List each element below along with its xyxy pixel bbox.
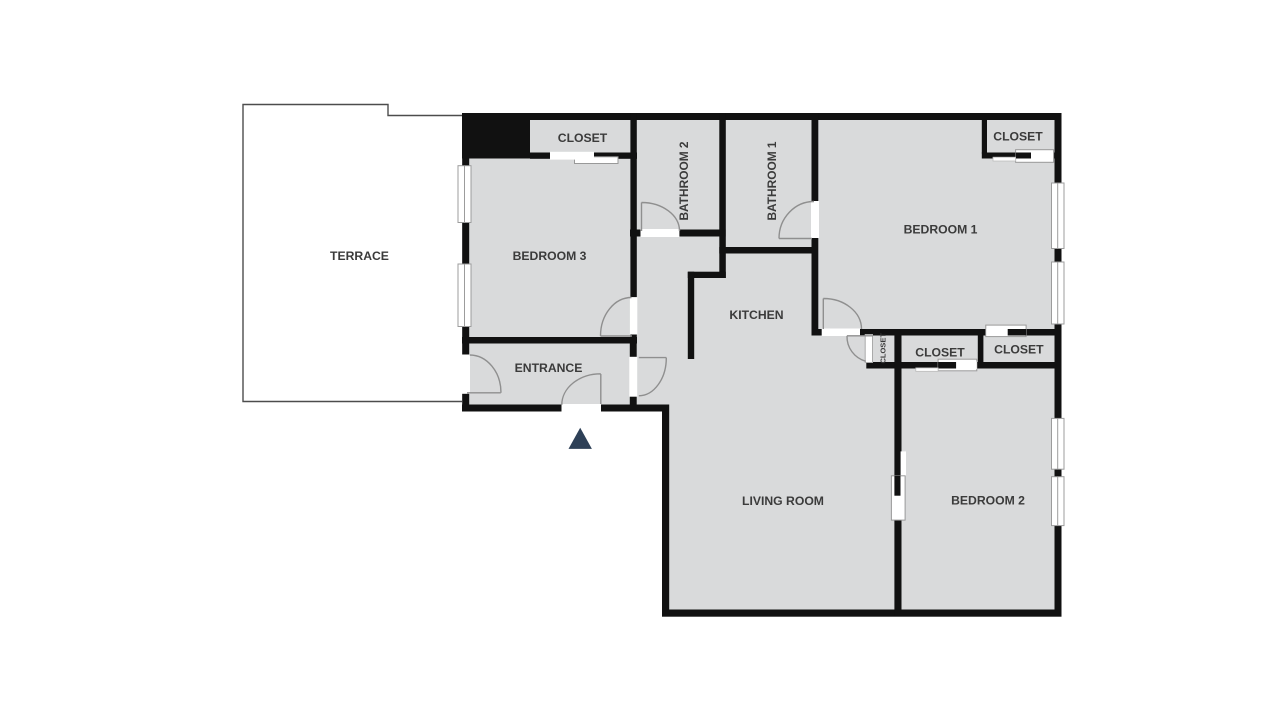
svg-text:CLOSET: CLOSET: [915, 345, 965, 359]
svg-text:BEDROOM 2: BEDROOM 2: [951, 494, 1025, 508]
svg-text:CLOSET: CLOSET: [879, 333, 888, 364]
svg-text:BEDROOM 3: BEDROOM 3: [513, 249, 587, 263]
svg-text:CLOSET: CLOSET: [994, 343, 1044, 357]
svg-text:KITCHEN: KITCHEN: [729, 308, 783, 322]
svg-text:CLOSET: CLOSET: [558, 131, 608, 145]
svg-text:CLOSET: CLOSET: [993, 130, 1043, 144]
svg-text:BATHROOM 1: BATHROOM 1: [765, 141, 779, 220]
svg-text:TERRACE: TERRACE: [330, 249, 389, 263]
svg-text:ENTRANCE: ENTRANCE: [515, 361, 583, 375]
svg-text:LIVING ROOM: LIVING ROOM: [742, 494, 824, 508]
svg-text:BATHROOM 2: BATHROOM 2: [677, 141, 691, 220]
svg-text:BEDROOM 1: BEDROOM 1: [904, 223, 978, 237]
